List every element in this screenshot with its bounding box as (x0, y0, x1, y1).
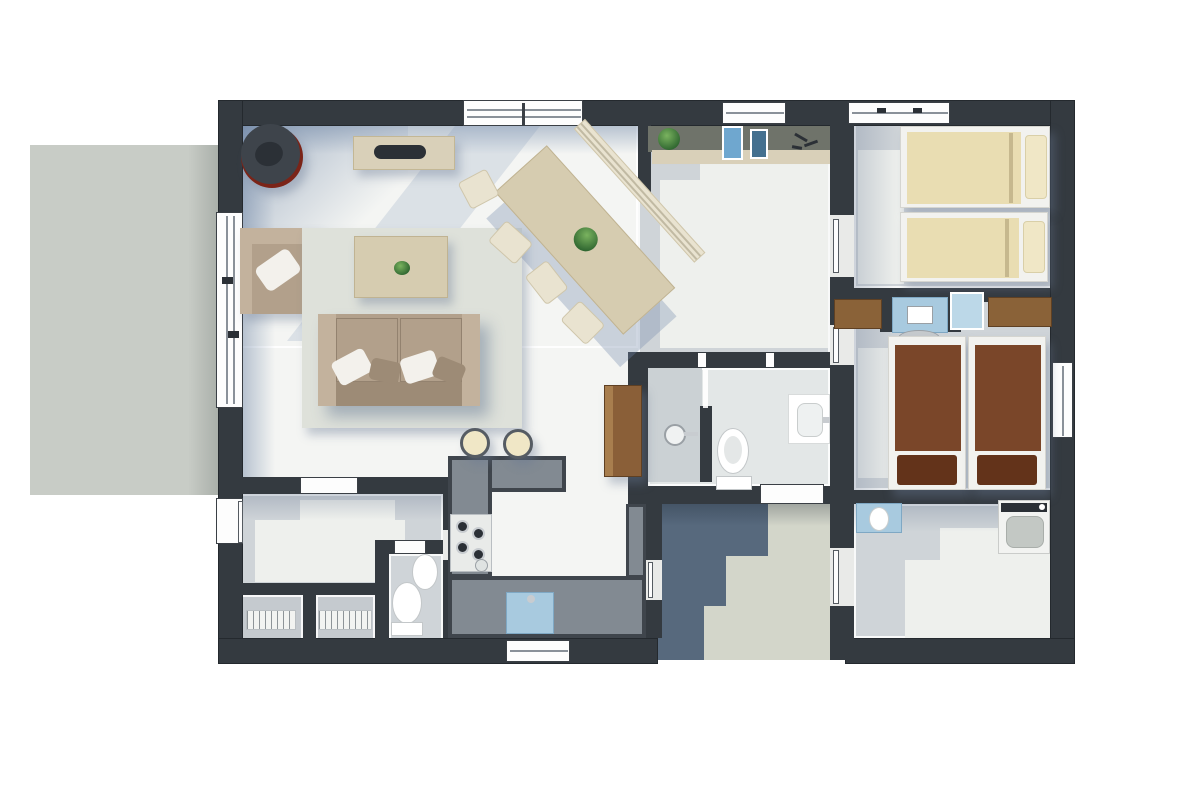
sofa (318, 314, 480, 406)
outer-wall-bottom-left (218, 638, 658, 664)
bed1-twin-a (900, 126, 1050, 208)
armchair-pillow (254, 247, 303, 293)
hall-window (722, 102, 786, 124)
vanity-basin (797, 403, 823, 437)
bed2b-duvet (975, 345, 1041, 451)
sofa-arm-left (318, 314, 336, 406)
bed2-single-a (888, 336, 966, 490)
window-handle-1 (877, 108, 886, 113)
stove (450, 514, 492, 572)
outer-wall-bottom-right (845, 638, 1075, 664)
bar-stool-1 (460, 428, 490, 458)
bed1b-pillow (1023, 221, 1045, 273)
bed2-single-b (968, 336, 1046, 490)
terrace-sliding-door (216, 212, 243, 408)
bar-stool-2 (503, 429, 533, 459)
toilet (714, 428, 754, 492)
burner-2 (472, 527, 485, 540)
shower-arm (684, 432, 698, 436)
tv-sideboard (353, 136, 455, 170)
counter-surface-4 (629, 507, 643, 575)
kitchen-faucet (527, 595, 535, 603)
bed1a-pillow (1025, 135, 1047, 199)
utility-door-leaf (833, 550, 839, 604)
toilet-tank (716, 476, 752, 490)
dining-sliding-window (463, 100, 583, 126)
kitchen-corridor-door (645, 560, 662, 600)
glass-line-6 (852, 112, 948, 114)
bedroom2-door-leaf (833, 327, 839, 363)
bedroom1-door-leaf (833, 219, 839, 273)
wall-wc-left (375, 540, 389, 640)
pan (475, 559, 488, 572)
shower-head (664, 424, 686, 446)
bathroom-jamb-1 (698, 353, 706, 367)
porch-step-3 (704, 606, 830, 660)
bed2b-pillow (977, 455, 1037, 485)
kitchen-window (506, 640, 570, 662)
front-door (216, 498, 243, 544)
picture-frame-2 (750, 129, 768, 159)
armchair-arm-left (240, 228, 252, 314)
bed1b-fold (1005, 219, 1009, 277)
bed1a-duvet (907, 132, 1021, 204)
sofa-arm-right (462, 314, 480, 406)
kitchen-sink (506, 592, 554, 634)
vanity-faucet (823, 417, 830, 423)
entry-door (300, 477, 358, 494)
closet1-radiator (246, 610, 296, 630)
picture-frame-1 (722, 126, 743, 160)
hall-highlight (660, 180, 828, 348)
wardrobe-right (988, 297, 1052, 327)
burner-1 (456, 520, 469, 533)
washer-dial (1039, 504, 1045, 510)
glass-line-2 (233, 216, 235, 404)
burner-3 (456, 541, 469, 554)
glass-panel (950, 292, 984, 330)
bathroom-jamb-2 (766, 353, 774, 367)
coffee-table-plant (394, 261, 410, 275)
floor-plan (0, 0, 1200, 800)
wall-closet-divider (303, 595, 316, 640)
shade-bedroom1 (854, 124, 898, 288)
window-mullion (522, 103, 525, 125)
sofa-back (336, 382, 462, 406)
bedroom1-door (830, 215, 854, 277)
glass-line-8 (510, 650, 568, 652)
window-handle-2 (913, 108, 922, 113)
bedroom2-door (830, 325, 854, 365)
hall-sideboard (648, 126, 830, 166)
glass-line-7 (1062, 366, 1064, 436)
tv (374, 145, 426, 159)
washer-drum (1006, 516, 1044, 548)
bed1a-fold (1009, 133, 1013, 203)
kitchen-door-leaf (648, 562, 653, 598)
utility-highlight (905, 560, 1052, 638)
hall-plant (658, 128, 680, 150)
bedroom2-window (1052, 362, 1073, 438)
wall-shower-stub (700, 406, 712, 482)
closet2-radiator (318, 610, 372, 630)
laptop (907, 306, 933, 324)
kitchen-counter-right-seg (626, 504, 646, 578)
utility-basin (869, 507, 889, 531)
bed1-twin-b (900, 212, 1048, 282)
round-lounge-chair (241, 126, 303, 188)
washing-machine (998, 500, 1050, 554)
bed2a-duvet (895, 345, 961, 451)
desk (892, 297, 948, 333)
slider-handle-2 (228, 331, 239, 338)
wardrobe-left (834, 299, 882, 329)
glass-line-1 (226, 216, 228, 404)
wc-toilet-tank (391, 622, 423, 636)
wall-bathroom-top (628, 352, 834, 368)
slider-handle-1 (222, 277, 233, 284)
coffee-table (354, 236, 448, 298)
wall-closet-top (240, 583, 376, 595)
shower-glass (703, 368, 708, 408)
bed1b-duvet (907, 218, 1019, 278)
wc-toilet (390, 582, 426, 638)
wc-toilet-bowl (392, 582, 422, 624)
shade-entry (240, 494, 443, 520)
porch-step-2 (726, 556, 830, 606)
front-door-leaf (238, 501, 243, 543)
utility-sink (856, 503, 902, 533)
toilet-seat (724, 436, 742, 464)
glass-line-5 (726, 112, 784, 114)
cabinet-highlight (605, 386, 613, 476)
bedroom1-window (848, 102, 950, 124)
utility-door (830, 548, 854, 606)
bed2a-pillow (897, 455, 957, 485)
bathroom-vanity (788, 394, 830, 444)
bathroom-door (760, 484, 824, 504)
tall-cabinet (604, 385, 642, 477)
wc-door (394, 540, 426, 554)
